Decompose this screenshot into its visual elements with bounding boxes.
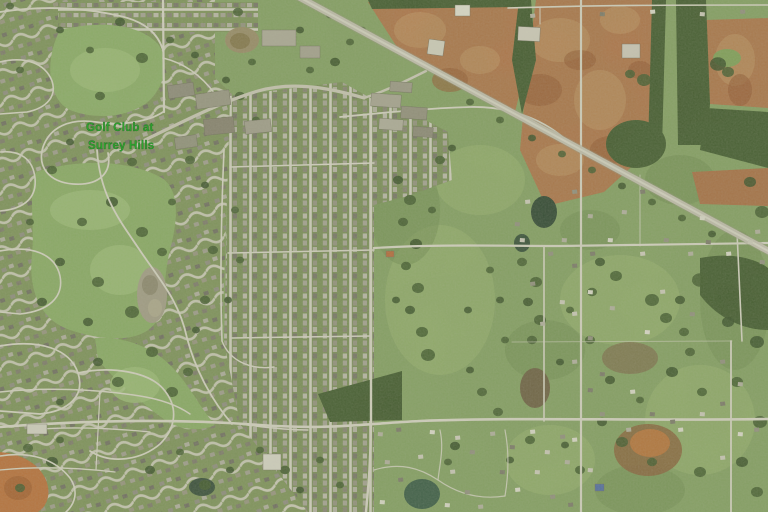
map-viewport[interactable]: Golf Club at Surrey Hills bbox=[0, 0, 768, 512]
imagery-grain bbox=[0, 0, 768, 512]
map-label-line1: Golf Club at bbox=[86, 122, 154, 134]
map-label-line2: Surrey Hills bbox=[88, 140, 154, 152]
satellite-map[interactable]: Golf Club at Surrey Hills bbox=[0, 0, 768, 512]
